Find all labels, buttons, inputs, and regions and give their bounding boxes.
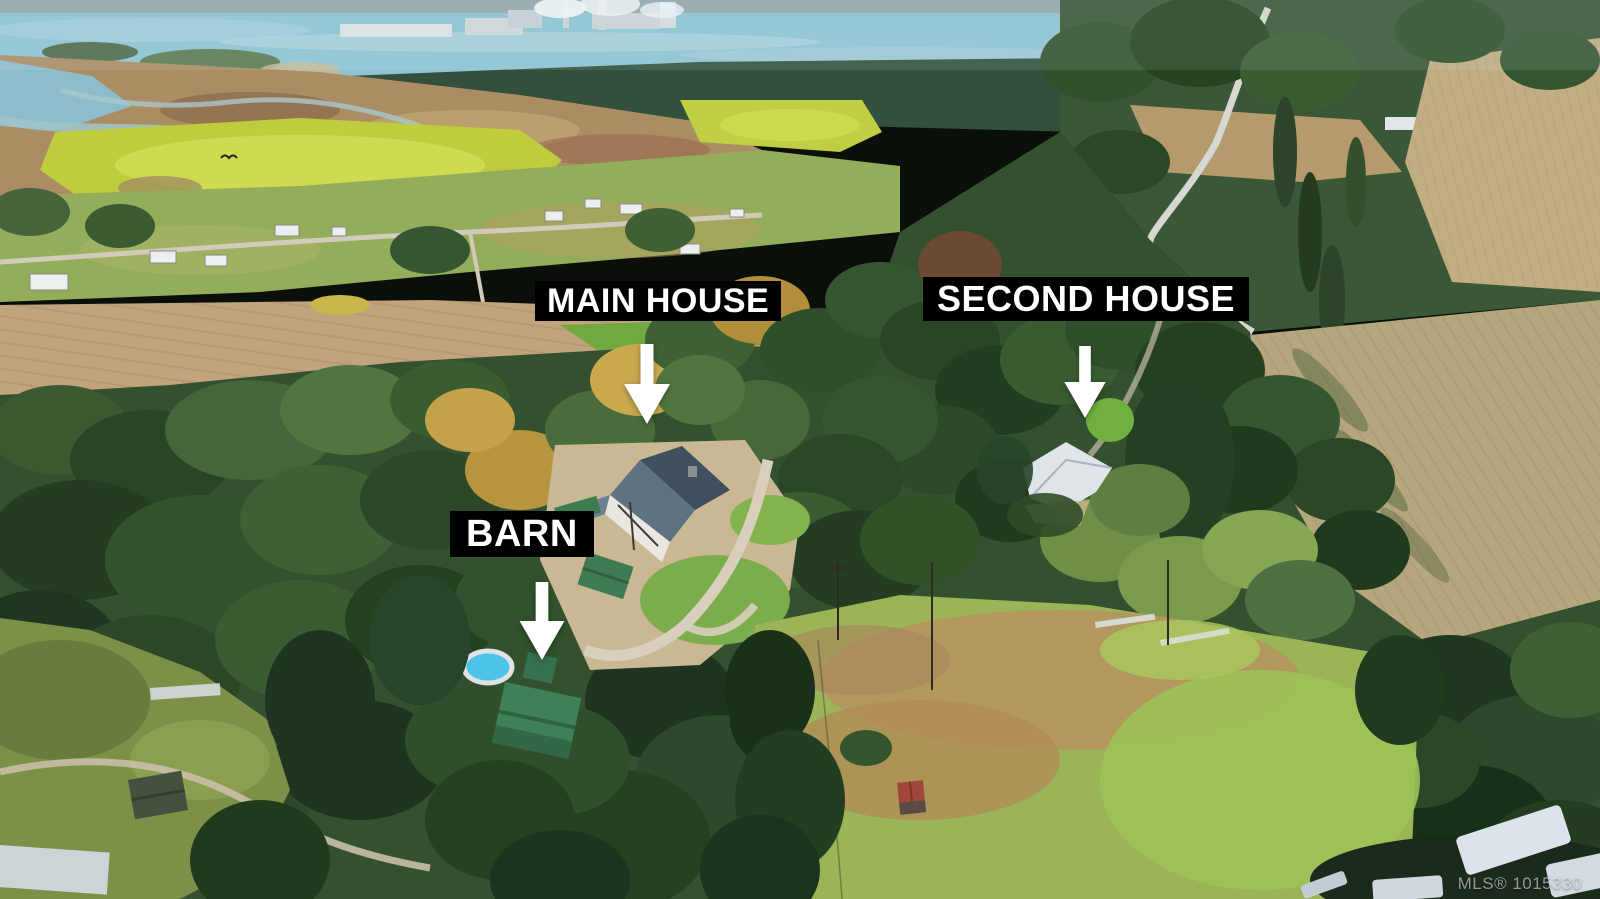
label-main-house: MAIN HOUSE bbox=[535, 281, 781, 321]
label-second-house: SECOND HOUSE bbox=[923, 277, 1249, 321]
down-arrow-icon bbox=[519, 582, 565, 660]
label-barn: BARN bbox=[450, 511, 594, 557]
atmospheric-haze bbox=[0, 0, 1600, 70]
mls-watermark: MLS® 1015330 bbox=[1458, 874, 1582, 894]
down-arrow-icon bbox=[624, 344, 670, 424]
white-trailer bbox=[0, 845, 110, 895]
down-arrow-icon bbox=[1063, 346, 1107, 418]
red-roof-shed bbox=[897, 780, 926, 815]
aerial-photo: MAIN HOUSE SECOND HOUSE BARN MLS® 101533… bbox=[0, 0, 1600, 899]
aerial-photo-scene bbox=[0, 0, 1600, 899]
above-ground-pool bbox=[464, 651, 512, 683]
